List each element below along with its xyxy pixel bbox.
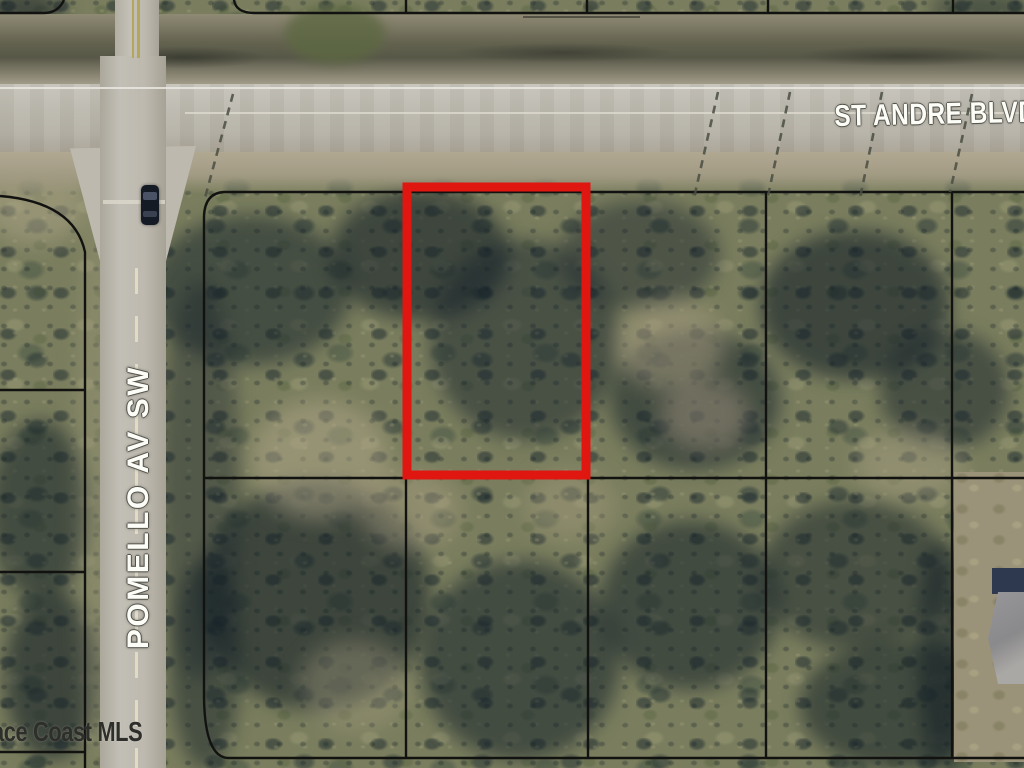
street-label-pomello: POMELLO AV SW [122, 365, 156, 649]
parcel-line [0, 0, 64, 13]
highlighted-parcel-outline [407, 187, 586, 475]
pole-shadow [768, 92, 790, 196]
street-label-st-andre: ST ANDRE BLVD [834, 96, 1024, 134]
pole-shadow [694, 92, 718, 198]
parcel-line [0, 196, 85, 768]
pole-shadow [205, 94, 233, 198]
parcel-line [204, 192, 1024, 758]
parcel-line [234, 0, 1024, 13]
aerial-map: ST ANDRE BLVD POMELLO AV SW ace Coast ML… [0, 0, 1024, 768]
mls-watermark: ace Coast MLS [0, 716, 142, 748]
